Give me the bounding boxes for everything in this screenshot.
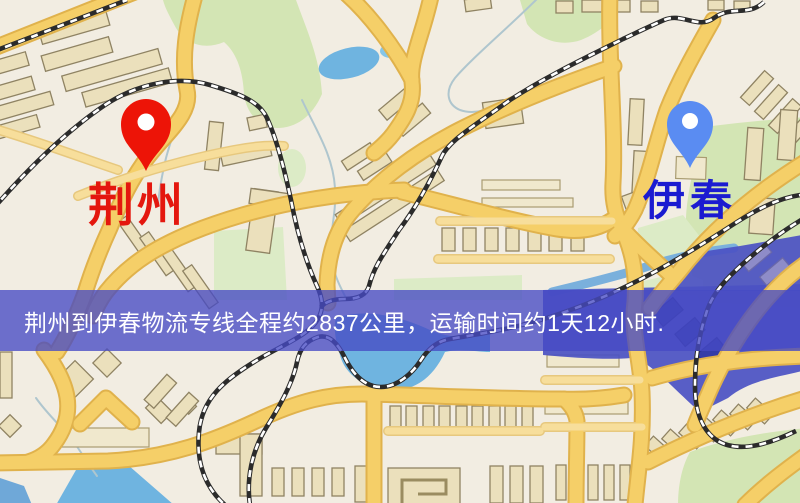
- origin-pin-hole: [138, 114, 155, 131]
- route-info-banner: 荆州到伊春物流专线全程约2837公里，运输时间约1天12小时.: [0, 290, 800, 351]
- destination-pin-hole: [682, 113, 698, 129]
- map-canvas: 荆州 伊春: [0, 0, 800, 503]
- route-info-text: 荆州到伊春物流专线全程约2837公里，运输时间约1天12小时.: [24, 304, 664, 338]
- origin-label: 荆州: [88, 179, 186, 231]
- map-view: 荆州 伊春 荆州到伊春物流专线全程约2837公里，运输时间约1天12小时.: [0, 0, 800, 503]
- destination-label: 伊春: [642, 177, 737, 224]
